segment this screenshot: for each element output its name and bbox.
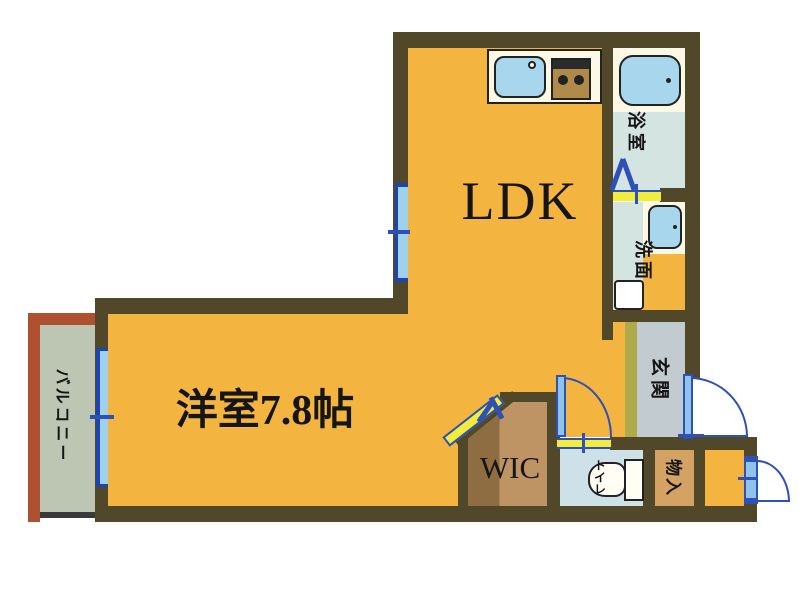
balcony-rail-bottom	[40, 512, 96, 518]
stove-burner	[558, 75, 568, 85]
gas-stove-icon	[551, 58, 591, 100]
washbasin-drain	[673, 225, 677, 229]
entrance-label: 玄関	[648, 357, 675, 403]
balcony-rail-top	[28, 313, 96, 325]
washroom-label: 洗面	[631, 240, 657, 282]
entrance-door-tick	[678, 434, 704, 437]
wall-top	[393, 32, 700, 48]
wall-bath-washroom	[660, 188, 685, 202]
balcony-rail-corner	[28, 512, 40, 522]
balcony-window-tick	[90, 415, 114, 419]
wall-washroom-entrance	[602, 310, 685, 322]
bathroom-label: 浴室	[624, 111, 650, 155]
ldk-window-tick	[388, 230, 410, 234]
bathtub-icon	[619, 55, 681, 106]
stove-burner	[574, 75, 584, 85]
entrance-step-edge	[625, 322, 637, 437]
wall-toilet-storage	[643, 449, 655, 506]
toilet-label: トイレ	[592, 459, 609, 495]
washing-machine-pan-icon	[614, 280, 644, 310]
toilet-tank	[624, 459, 644, 501]
storage-label: 物入	[663, 459, 688, 497]
wall-wic-left	[458, 437, 468, 506]
storage-door-arc	[757, 460, 790, 502]
stove-top	[553, 60, 589, 69]
balcony-rail-left	[28, 313, 40, 522]
wall-storage-trunk	[694, 449, 705, 506]
storage-door-tick	[738, 477, 758, 480]
wic-label: WIC	[468, 450, 552, 486]
toilet-threshold-tick	[582, 433, 585, 453]
wall-bottom	[95, 506, 757, 522]
toilet-door-leaf	[556, 375, 566, 437]
bedroom-label: 洋室7.8帖	[130, 376, 400, 437]
faucet-icon	[528, 61, 536, 69]
ldk-label: LDK	[430, 170, 610, 232]
entrance-door-arc	[690, 377, 748, 437]
balcony-label: バルコニー	[52, 369, 76, 464]
wall-bedroom-top	[95, 298, 408, 314]
bathtub-drain	[666, 78, 671, 83]
kitchen-sink-icon	[494, 56, 546, 98]
entrance-door-leaf	[683, 374, 693, 439]
floor-plan: LDK 洋室7.8帖 WIC バルコニー 浴室 洗面 玄関 物入 トイレ	[0, 0, 811, 600]
storage-door-leaf	[744, 456, 758, 504]
